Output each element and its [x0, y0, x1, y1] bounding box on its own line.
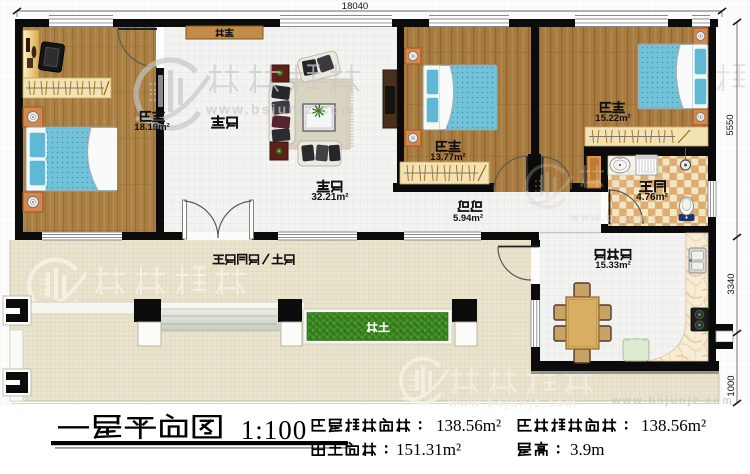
svg-text:5.94m²: 5.94m² — [453, 213, 483, 224]
svg-text:3.9m: 3.9m — [570, 440, 604, 459]
svg-text:www.bsjunjz.com: www.bsjunjz.com — [205, 101, 356, 117]
svg-text:3340: 3340 — [726, 273, 737, 294]
svg-text:138.56m²: 138.56m² — [436, 416, 501, 435]
svg-text:138.56m²: 138.56m² — [641, 416, 706, 435]
svg-text:www.bsjunjz: www.bsjunjz — [569, 212, 658, 224]
svg-text:15.33m²: 15.33m² — [595, 260, 630, 271]
svg-text:www.bsjunjz.com: www.bsjunjz.com — [611, 395, 734, 407]
svg-text:151.31m²: 151.31m² — [396, 440, 461, 459]
svg-text:5550: 5550 — [725, 114, 736, 135]
svg-text:13.77m²: 13.77m² — [430, 152, 465, 163]
svg-text:1000: 1000 — [726, 375, 737, 396]
svg-text:32.21m²: 32.21m² — [311, 192, 349, 203]
svg-text:18.19m²: 18.19m² — [134, 122, 169, 133]
svg-text:18040: 18040 — [342, 1, 368, 12]
svg-text:1:100: 1:100 — [241, 415, 308, 445]
svg-text:15.22m²: 15.22m² — [595, 113, 630, 124]
svg-text:4.76m²: 4.76m² — [636, 192, 668, 203]
svg-text:www.bsjunjz.com: www.bsjunjz.com — [447, 396, 578, 410]
